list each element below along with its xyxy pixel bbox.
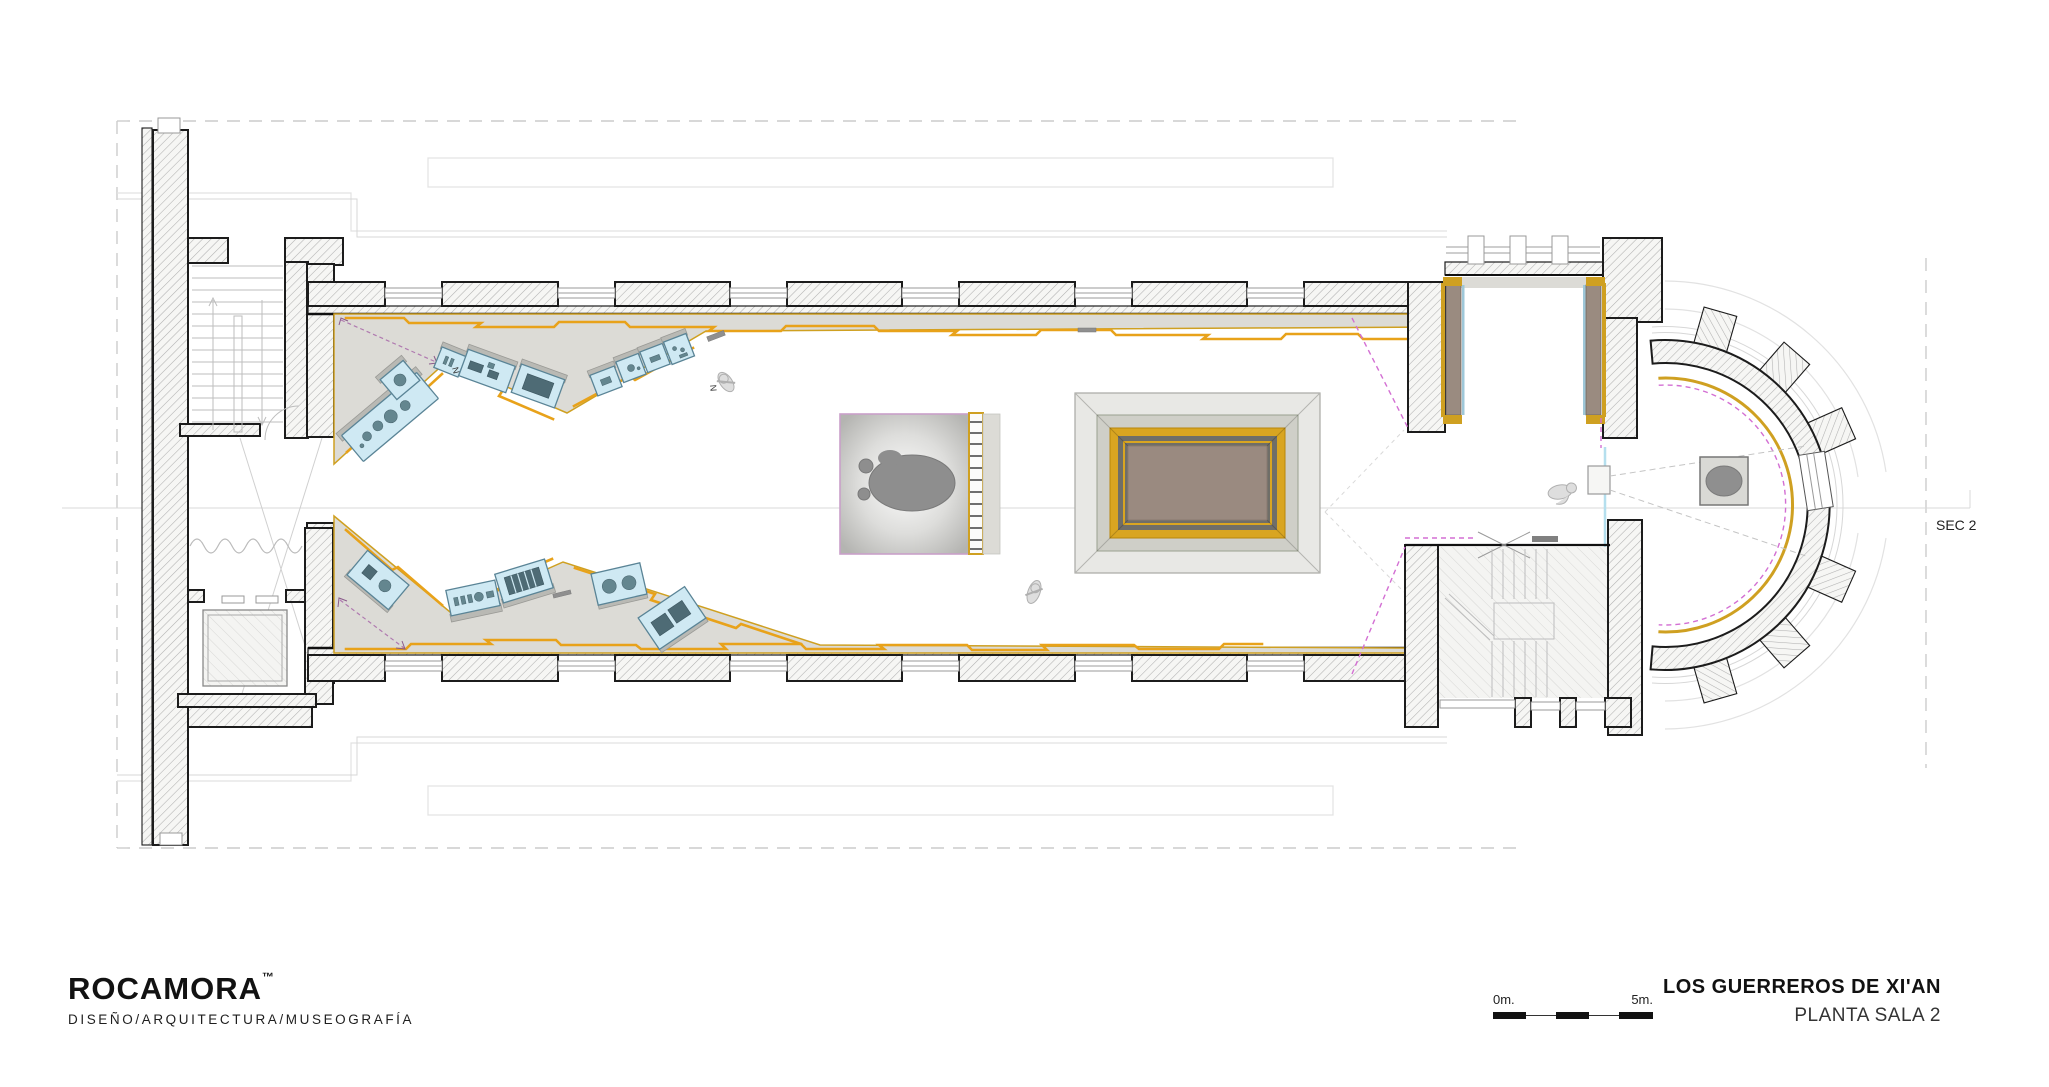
vestibule-beam bbox=[1458, 277, 1588, 288]
floor-plan: SEC 2 bbox=[0, 0, 2049, 1087]
elevator bbox=[203, 596, 287, 686]
scale-end-label: 5m. bbox=[1631, 992, 1653, 1007]
site-boundary bbox=[117, 121, 1926, 848]
vestibule-panel-right bbox=[1583, 283, 1606, 417]
left-wing-walls bbox=[142, 118, 343, 845]
firm-name: ROCAMORA™ bbox=[68, 973, 414, 1004]
title-block: LOS GUERREROS DE XI'AN PLANTA SALA 2 bbox=[1663, 976, 1941, 1027]
section-line: SEC 2 bbox=[62, 490, 1977, 533]
scale-bar: 0m. 5m. bbox=[1493, 992, 1653, 1019]
apse-window bbox=[1799, 451, 1833, 510]
stair-room-southeast bbox=[1352, 520, 1642, 735]
central-platform bbox=[840, 413, 1000, 554]
stairs-top-left bbox=[192, 266, 299, 440]
scale-figure bbox=[1023, 578, 1044, 605]
scale-start-label: 0m. bbox=[1493, 992, 1515, 1007]
firm-tagline: DISEÑO/ARQUITECTURA/MUSEOGRAFÍA bbox=[68, 1012, 414, 1027]
firm-logo: ROCAMORA™ DISEÑO/ARQUITECTURA/MUSEOGRAFÍ… bbox=[68, 973, 414, 1027]
break-wavy-line bbox=[190, 539, 302, 553]
drawing-sheet: SEC 2 bbox=[0, 0, 2049, 1087]
trademark: ™ bbox=[262, 970, 275, 984]
section-label: SEC 2 bbox=[1936, 517, 1977, 533]
vestibule bbox=[1352, 236, 1662, 448]
sight-lines bbox=[1325, 430, 1404, 592]
statue-plinth bbox=[1700, 457, 1748, 505]
excavation-pit bbox=[1075, 393, 1320, 573]
vitrine-mark: N bbox=[708, 384, 719, 391]
scale-figure bbox=[714, 369, 738, 395]
project-title: LOS GUERREROS DE XI'AN bbox=[1663, 976, 1941, 999]
ramp-strip bbox=[969, 413, 1000, 554]
scale-bar-graphic bbox=[1493, 1012, 1653, 1019]
scale-figure bbox=[1547, 482, 1579, 506]
north-wall-band bbox=[308, 282, 1443, 314]
sheet-title: PLANTA SALA 2 bbox=[1663, 1005, 1941, 1027]
vestibule-panel-left bbox=[1441, 283, 1465, 417]
